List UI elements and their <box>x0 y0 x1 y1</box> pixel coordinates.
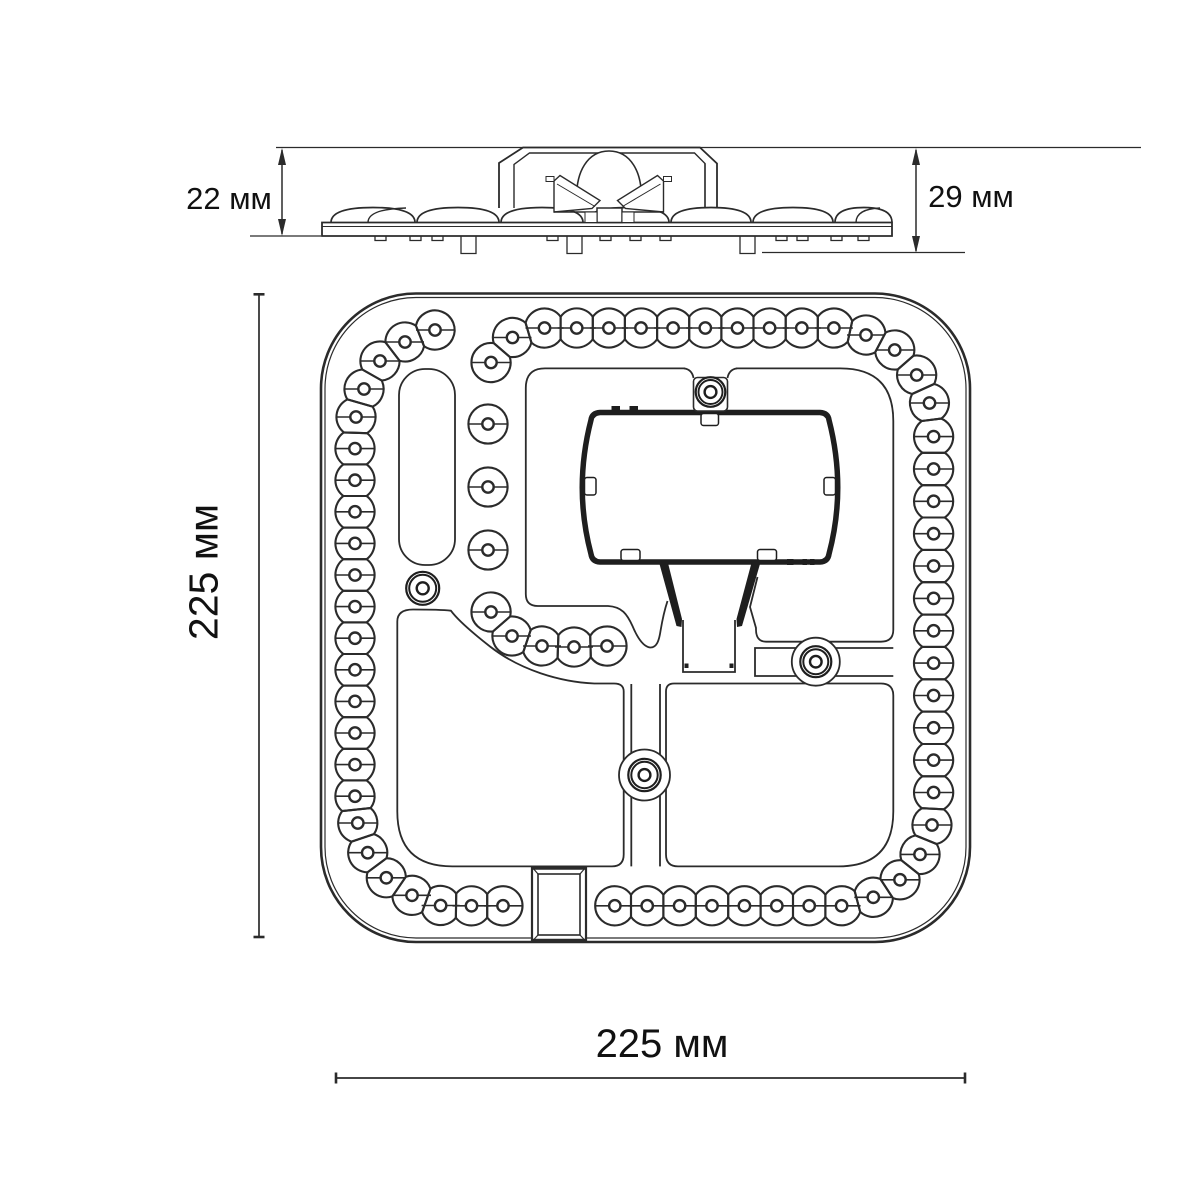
svg-text:29 мм: 29 мм <box>928 179 1014 214</box>
svg-text:225 мм: 225 мм <box>596 1022 729 1066</box>
svg-text:22 мм: 22 мм <box>186 181 272 216</box>
svg-text:225 мм: 225 мм <box>181 504 227 640</box>
